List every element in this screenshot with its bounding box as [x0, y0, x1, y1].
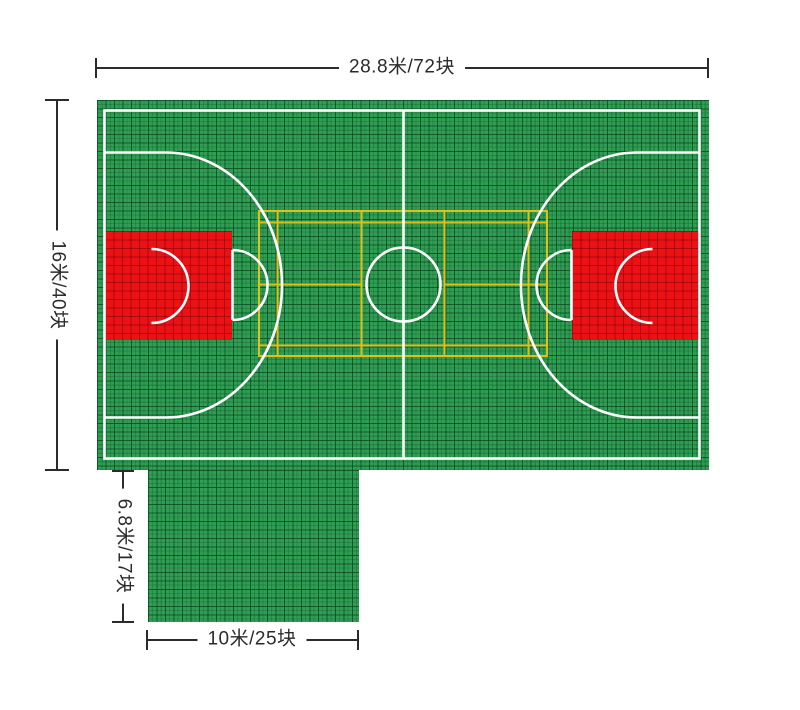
dimension-lines	[45, 58, 708, 650]
dimension-label-top-width: 28.8米/72块	[339, 56, 465, 81]
dimension-label-extension-width: 10米/25块	[197, 628, 306, 653]
restricted-arc-right	[616, 249, 653, 323]
court-boundary-line	[105, 111, 700, 459]
dimension-label-left-height: 16米/40块	[45, 230, 70, 339]
basketball-court-lines	[105, 111, 701, 459]
dimension-label-extension-height: 6.8米/17块	[111, 489, 136, 604]
restricted-arc-left	[152, 249, 189, 323]
court-diagram: 28.8米/72块 16米/40块 6.8米/17块 10米/25块	[0, 0, 800, 710]
court-lines-overlay	[0, 0, 800, 710]
three-point-line-left	[105, 153, 283, 418]
